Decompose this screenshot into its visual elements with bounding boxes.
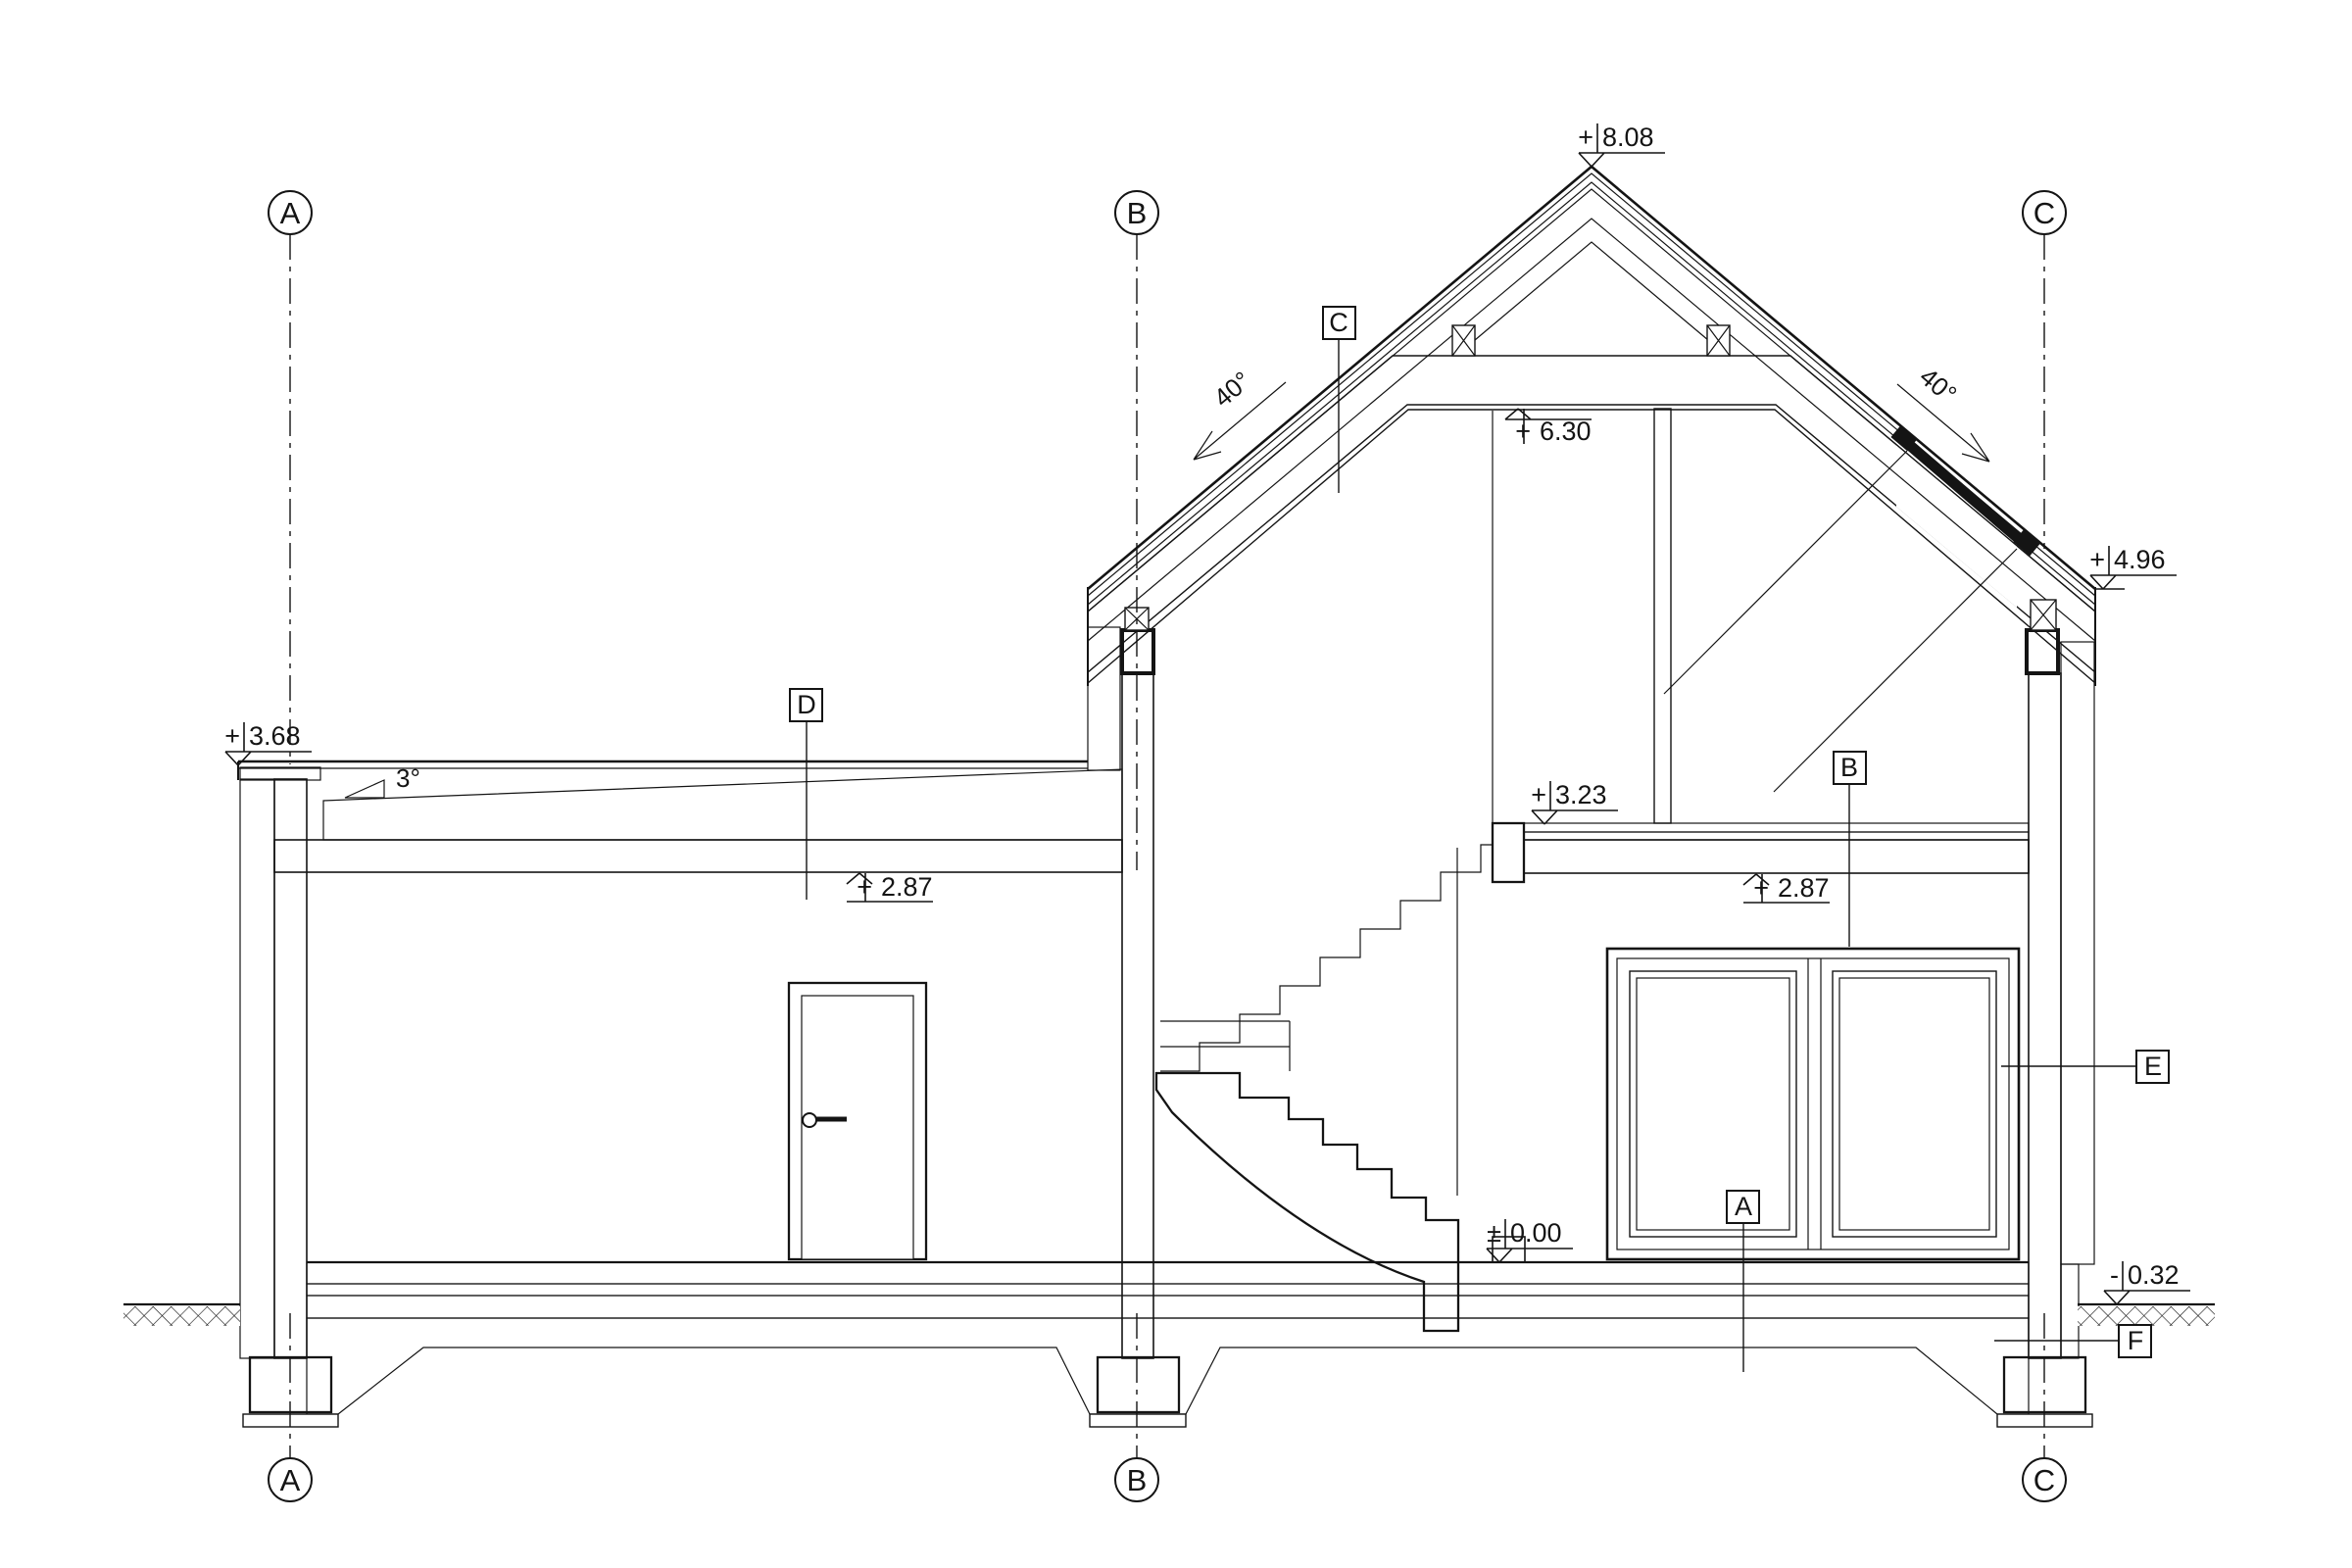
tag-b: B [1834,752,1866,947]
foundation-subbase [307,1318,2029,1414]
level-sign: + [2089,545,2105,574]
tag-label: E [2144,1052,2162,1081]
level-sign: + [1578,122,1593,152]
skylight-reveal-line [1664,451,1907,694]
tag-label: B [1840,753,1858,782]
level-value: 0.00 [1510,1218,1562,1248]
level-value: 8.08 [1602,122,1654,152]
grid-label: C [2033,196,2055,230]
wall-c-core [2029,673,2061,1358]
annex-flat-roof [238,761,1122,872]
level-annex-ceiling: + 2.87 [847,872,933,902]
level-value: 3.23 [1555,780,1607,809]
grid-bubble-a-top: A [269,191,312,234]
level-sign: + [857,872,872,902]
wall-c-insulation [2061,642,2094,1264]
grid-bubble-b-bottom: B [1115,1458,1158,1501]
grid-bubble-b-top: B [1115,191,1158,234]
level-value: 6.30 [1540,416,1592,446]
level-sign: - [2110,1260,2119,1290]
wall-a-core [274,779,307,1358]
angle-value: 40° [1914,362,1962,409]
tag-a: A [1727,1191,1759,1372]
tag-d: D [790,689,822,900]
level-sign: + [1531,780,1546,809]
level-sign: + [1515,416,1531,446]
level-sign: + [1753,873,1769,903]
section-drawing: A B C A B C + 8.08 + 3.68 ± 0.00 - [0,0,2352,1568]
grid-axes: A B C A B C [269,191,2066,1501]
angle-value: 40° [1208,366,1256,413]
wall-c-plinth-insulation [2061,1264,2079,1358]
level-ridge: + 8.08 [1578,122,1665,167]
footing-b [1098,1357,1179,1412]
angle-value: 3° [396,763,420,793]
left-roof-slope-label: 40° [1194,366,1286,460]
skylight-reveal-line [1774,549,2017,792]
level-value: 2.87 [1778,873,1830,903]
stair-steps-outline [1160,845,1493,1071]
grid-label: A [280,1463,301,1497]
grid-label: B [1127,196,1148,230]
collar-purlin-left [1452,325,1475,356]
grid-label: C [2033,1463,2055,1497]
tag-c: C [1323,307,1355,493]
grid-bubble-a-bottom: A [269,1458,312,1501]
level-value: 0.32 [2128,1260,2180,1290]
tag-label: D [797,690,816,719]
attic-partition-wall [1654,409,1671,823]
level-value: 4.96 [2114,545,2166,574]
level-value: 3.68 [249,721,301,751]
main-roof [1088,167,2125,686]
window [1607,949,2019,1259]
level-ground-floor: ± 0.00 [1487,1218,1573,1262]
level-right-eaves: + 4.96 [2089,545,2177,589]
tag-f: F [1994,1325,2151,1357]
tag-label: F [2128,1326,2144,1355]
tag-e: E [2001,1051,2169,1083]
level-grade: - 0.32 [2104,1260,2190,1304]
skylight [1664,425,2040,792]
ground-floor-slab [307,1262,2029,1318]
level-sign: + [224,721,240,751]
section-canvas: A B C A B C + 8.08 + 3.68 ± 0.00 - [0,0,2352,1568]
angle-labels: 40° 40° 3° [345,362,1989,798]
level-collar: + 6.30 [1505,409,1592,446]
footings [243,1357,2092,1427]
level-sign: ± [1487,1218,1501,1248]
wall-c-wallplate [2031,600,2056,630]
interior-door [789,983,926,1259]
stairwell-trimmer-beam [1493,823,1524,882]
grid-bubble-c-bottom: C [2023,1458,2066,1501]
grid-label: A [280,196,301,230]
wall-a-insulation [240,779,274,1358]
level-annex-roof: + 3.68 [224,721,312,765]
grid-label: B [1127,1463,1148,1497]
grid-bubble-c-top: C [2023,191,2066,234]
wall-b-ring-beam [1122,630,1153,673]
stair-flight-cut [1156,1073,1458,1331]
level-main-ceiling: + 2.87 [1743,873,1830,903]
wall-b-core [1122,673,1153,1358]
tag-label: A [1735,1192,1752,1221]
tag-label: C [1329,308,1348,337]
level-value: 2.87 [881,872,933,902]
level-attic-floor: + 3.23 [1531,780,1618,824]
terrain [123,1304,2215,1326]
staircase [1156,411,1525,1331]
collar-purlin-right [1707,325,1730,356]
